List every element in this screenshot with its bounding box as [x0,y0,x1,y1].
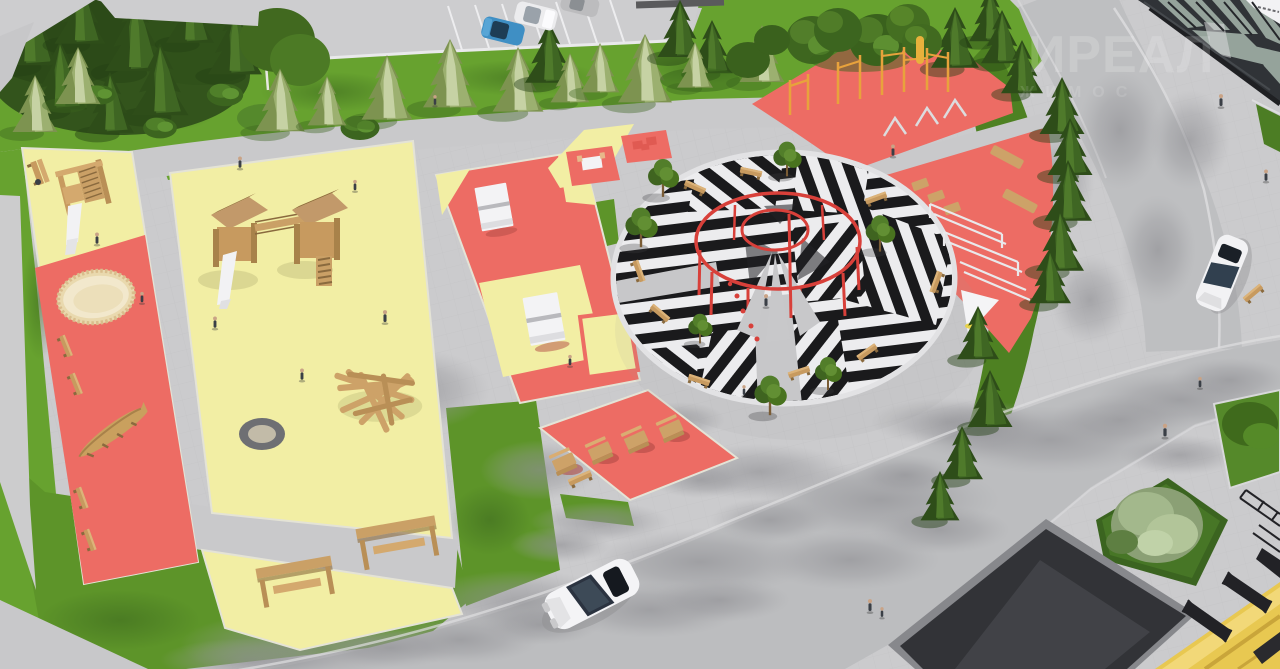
svg-text:ИРЕАЛ: ИРЕАЛ [1028,26,1214,84]
svg-text:ЖИМОС: ЖИМОС [1019,84,1138,101]
